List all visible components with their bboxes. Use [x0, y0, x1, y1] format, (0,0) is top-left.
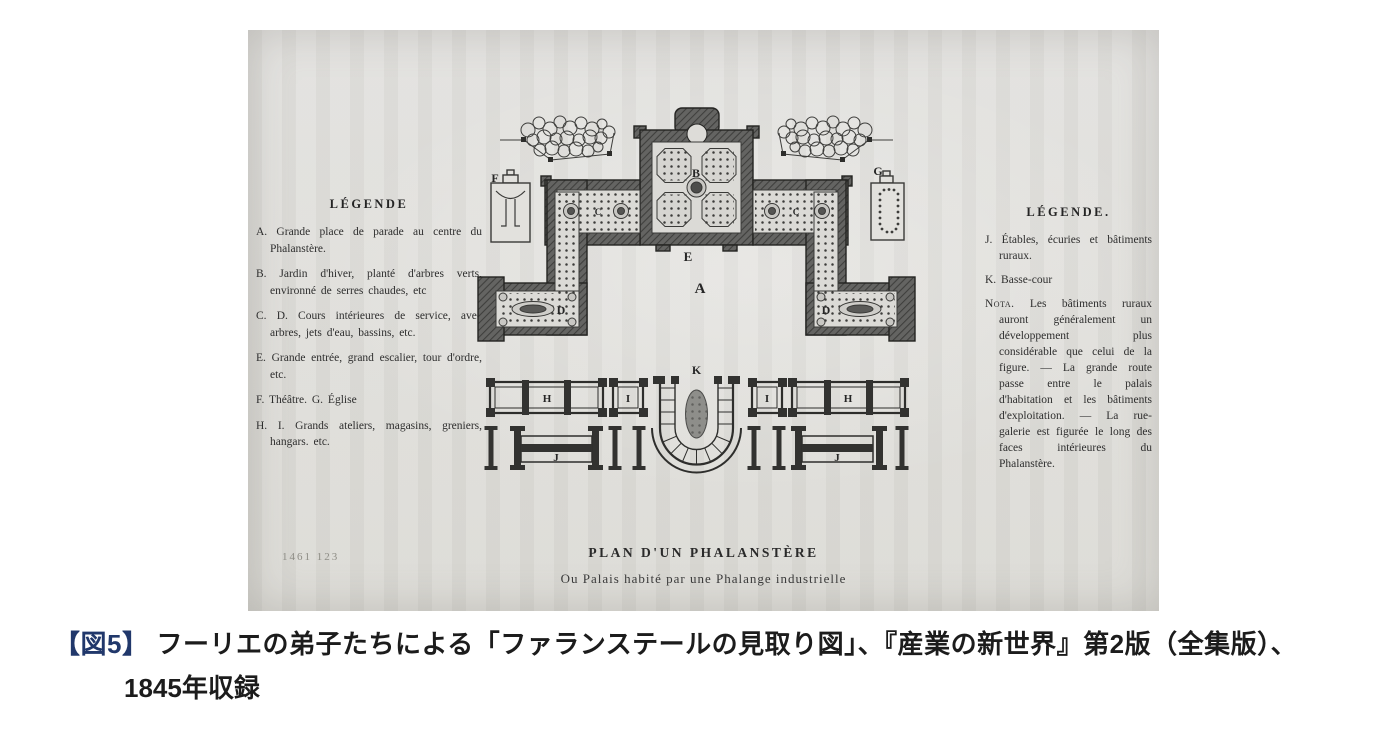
plan-label-i-right: I [765, 393, 769, 405]
plan-label-a: A [695, 281, 706, 297]
basse-cour-k [652, 376, 741, 473]
plan-label-b: B [692, 166, 700, 180]
plan-label-e: E [684, 249, 693, 264]
figure-number-tag: 【図5】 [54, 629, 148, 659]
figure-caption-line2: 1845年収録 [124, 668, 260, 705]
plan-label-d-left: D [557, 303, 566, 317]
scanned-figure: LÉGENDE A. Grande place de parade au cen… [248, 30, 1159, 611]
plan-label-j-left: J [553, 452, 559, 464]
plan-label-h-right: H [844, 393, 853, 405]
plan-title: PLAN D'UN PHALANSTÈRE [248, 545, 1159, 561]
plan-label-c-left: C [595, 207, 602, 217]
plan-label-g: G [873, 164, 882, 178]
figure-caption-line1: 【図5】フーリエの弟子たちによる「ファランステールの見取り図」、『産業の新世界』… [54, 624, 1297, 661]
phalanstere-plan-drawing: B E A C C D D F G K H I I H J J [248, 30, 1159, 611]
plan-label-k: K [692, 363, 702, 377]
plan-subtitle: Ou Palais habité par une Phalange indust… [248, 571, 1159, 587]
plan-label-i-left: I [626, 393, 630, 405]
plan-label-f: F [491, 171, 498, 185]
plan-label-j-right: J [834, 452, 840, 464]
plan-label-d-right: D [822, 303, 831, 317]
page-mark: 1461 123 [282, 551, 339, 563]
caption-text: フーリエの弟子たちによる「ファランステールの見取り図」、『産業の新世界』第2版（… [156, 629, 1297, 659]
plan-label-h-left: H [543, 393, 552, 405]
plan-label-c-right: C [793, 207, 800, 217]
